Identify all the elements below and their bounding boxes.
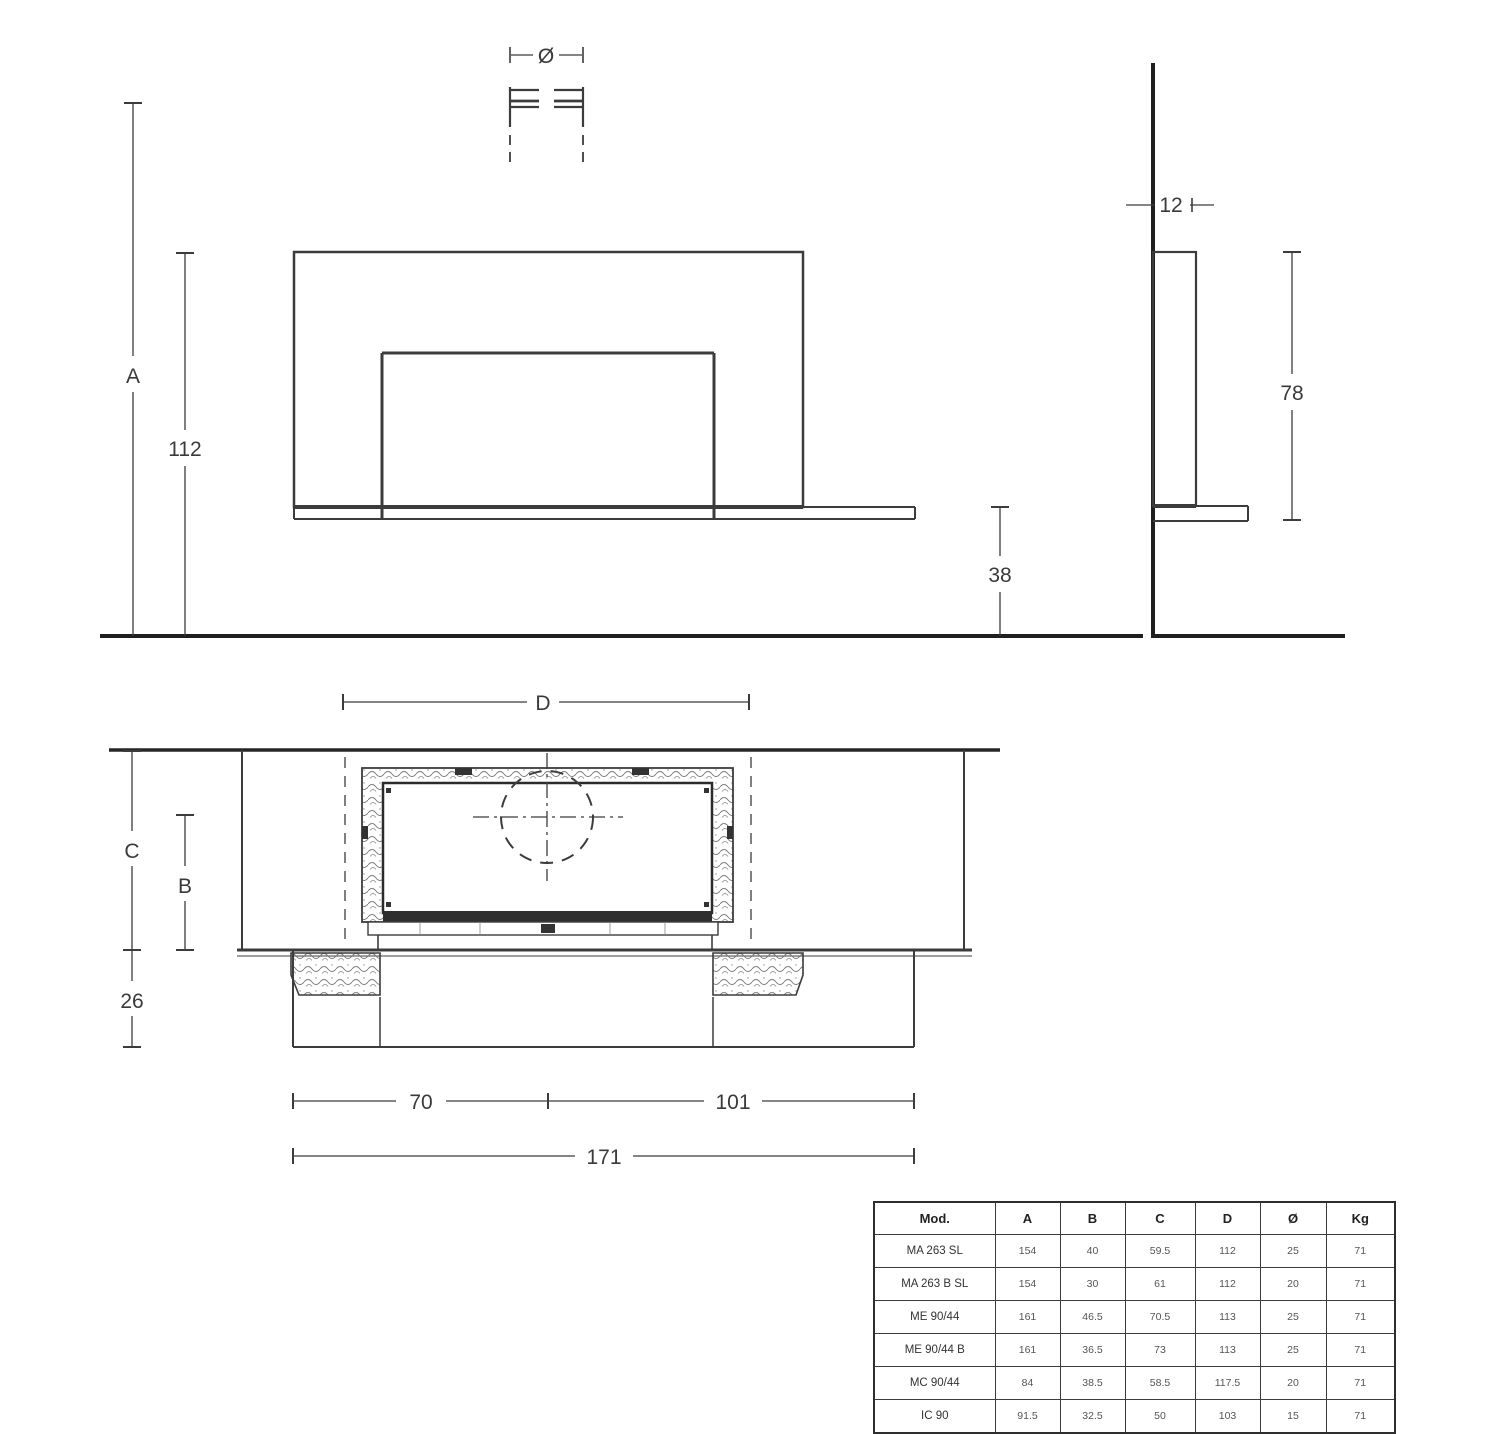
- side-body-outline: [1153, 252, 1196, 506]
- value-b: 40: [1060, 1235, 1125, 1268]
- value-diameter: 25: [1260, 1301, 1326, 1334]
- front-view: Ø: [100, 45, 1143, 636]
- screw-dot: [386, 902, 391, 907]
- value-d: 117.5: [1195, 1367, 1260, 1400]
- vent-slot: [727, 826, 733, 839]
- dimension-70-101: 70 101: [293, 1085, 914, 1118]
- value-d: 103: [1195, 1400, 1260, 1434]
- value-b: 32.5: [1060, 1400, 1125, 1434]
- col-header-diameter: Ø: [1260, 1202, 1326, 1235]
- table-row: MA 263 B SL 154 30 61 112 20 71: [874, 1268, 1395, 1301]
- screw-dot: [704, 902, 709, 907]
- value-d: 113: [1195, 1334, 1260, 1367]
- vent-slot: [632, 768, 649, 775]
- dimension-112-label: 112: [168, 438, 201, 461]
- dimension-B: B: [168, 815, 202, 950]
- front-surround-outline: [294, 252, 803, 507]
- value-d: 112: [1195, 1235, 1260, 1268]
- dimension-C-label: C: [124, 840, 139, 863]
- dimension-171: 171: [293, 1140, 914, 1173]
- model-name: MA 263 SL: [874, 1235, 995, 1268]
- table-row: ME 90/44 B 161 36.5 73 113 25 71: [874, 1334, 1395, 1367]
- side-view: 12 78: [1126, 63, 1345, 636]
- value-c: 50: [1125, 1400, 1195, 1434]
- flue-diameter-label: Ø: [538, 45, 554, 68]
- dimension-12-label: 12: [1159, 194, 1182, 217]
- value-a: 161: [995, 1301, 1060, 1334]
- spec-table: Mod. A B C D Ø Kg MA 263 SL 154 40 59.5 …: [873, 1201, 1396, 1434]
- col-header-a: A: [995, 1202, 1060, 1235]
- col-header-kg: Kg: [1326, 1202, 1395, 1235]
- table-row: MA 263 SL 154 40 59.5 112 25 71: [874, 1235, 1395, 1268]
- dimension-A: A: [120, 103, 146, 636]
- dimension-112: 112: [160, 253, 210, 636]
- col-header-c: C: [1125, 1202, 1195, 1235]
- value-c: 59.5: [1125, 1235, 1195, 1268]
- technical-drawing-page: { "page": { "background": "#ffffff", "li…: [0, 0, 1500, 1427]
- model-name: MC 90/44: [874, 1367, 995, 1400]
- dimension-38-label: 38: [988, 564, 1011, 587]
- dimension-38: 38: [977, 507, 1023, 636]
- dimension-78-label: 78: [1280, 382, 1303, 405]
- value-kg: 71: [1326, 1334, 1395, 1367]
- value-kg: 71: [1326, 1235, 1395, 1268]
- model-name: ME 90/44 B: [874, 1334, 995, 1367]
- value-d: 112: [1195, 1268, 1260, 1301]
- dimension-70-label: 70: [409, 1091, 432, 1114]
- table-row: ME 90/44 161 46.5 70.5 113 25 71: [874, 1301, 1395, 1334]
- value-kg: 71: [1326, 1268, 1395, 1301]
- value-diameter: 15: [1260, 1400, 1326, 1434]
- plan-firebox-front-frame: [383, 911, 712, 922]
- flue-pipe-icon: [509, 87, 584, 165]
- dimension-171-label: 171: [586, 1146, 621, 1169]
- value-b: 46.5: [1060, 1301, 1125, 1334]
- dimension-101-label: 101: [715, 1091, 750, 1114]
- value-kg: 71: [1326, 1367, 1395, 1400]
- table-row: IC 90 91.5 32.5 50 103 15 71: [874, 1400, 1395, 1434]
- dimension-78: 78: [1268, 252, 1316, 520]
- value-a: 154: [995, 1268, 1060, 1301]
- spec-table-header-row: Mod. A B C D Ø Kg: [874, 1202, 1395, 1235]
- plan-base-platform: [293, 950, 914, 1047]
- value-kg: 71: [1326, 1301, 1395, 1334]
- model-name: MA 263 B SL: [874, 1268, 995, 1301]
- value-a: 91.5: [995, 1400, 1060, 1434]
- value-a: 154: [995, 1235, 1060, 1268]
- col-header-d: D: [1195, 1202, 1260, 1235]
- value-c: 61: [1125, 1268, 1195, 1301]
- model-name: ME 90/44: [874, 1301, 995, 1334]
- dimension-12: 12: [1126, 194, 1214, 217]
- front-firebox-opening: [382, 353, 714, 519]
- dimension-D-label: D: [535, 692, 550, 715]
- value-c: 73: [1125, 1334, 1195, 1367]
- col-header-mod: Mod.: [874, 1202, 995, 1235]
- value-diameter: 25: [1260, 1334, 1326, 1367]
- value-d: 113: [1195, 1301, 1260, 1334]
- screw-dot: [386, 788, 391, 793]
- dimension-A-label: A: [126, 365, 140, 388]
- dimension-B-label: B: [178, 875, 192, 898]
- value-diameter: 20: [1260, 1268, 1326, 1301]
- vent-slot: [455, 768, 472, 775]
- plan-left-bracket: [291, 953, 380, 995]
- col-header-b: B: [1060, 1202, 1125, 1235]
- vent-slot: [362, 826, 368, 839]
- value-b: 30: [1060, 1268, 1125, 1301]
- dimension-D: D: [343, 686, 749, 718]
- value-c: 58.5: [1125, 1367, 1195, 1400]
- dimension-26-label: 26: [120, 990, 143, 1013]
- value-b: 36.5: [1060, 1334, 1125, 1367]
- flue-diameter-dimension: Ø: [510, 45, 583, 68]
- model-name: IC 90: [874, 1400, 995, 1434]
- value-kg: 71: [1326, 1400, 1395, 1434]
- plan-view: D C 26 B: [108, 686, 1000, 1173]
- table-row: MC 90/44 84 38.5 58.5 117.5 20 71: [874, 1367, 1395, 1400]
- value-c: 70.5: [1125, 1301, 1195, 1334]
- value-a: 161: [995, 1334, 1060, 1367]
- screw-dot: [704, 788, 709, 793]
- side-bench-shelf: [1153, 506, 1248, 521]
- value-diameter: 20: [1260, 1367, 1326, 1400]
- dimension-26: 26: [108, 950, 156, 1047]
- value-b: 38.5: [1060, 1367, 1125, 1400]
- value-a: 84: [995, 1367, 1060, 1400]
- value-diameter: 25: [1260, 1235, 1326, 1268]
- dimension-C: C: [115, 751, 149, 950]
- plan-right-bracket: [713, 953, 803, 995]
